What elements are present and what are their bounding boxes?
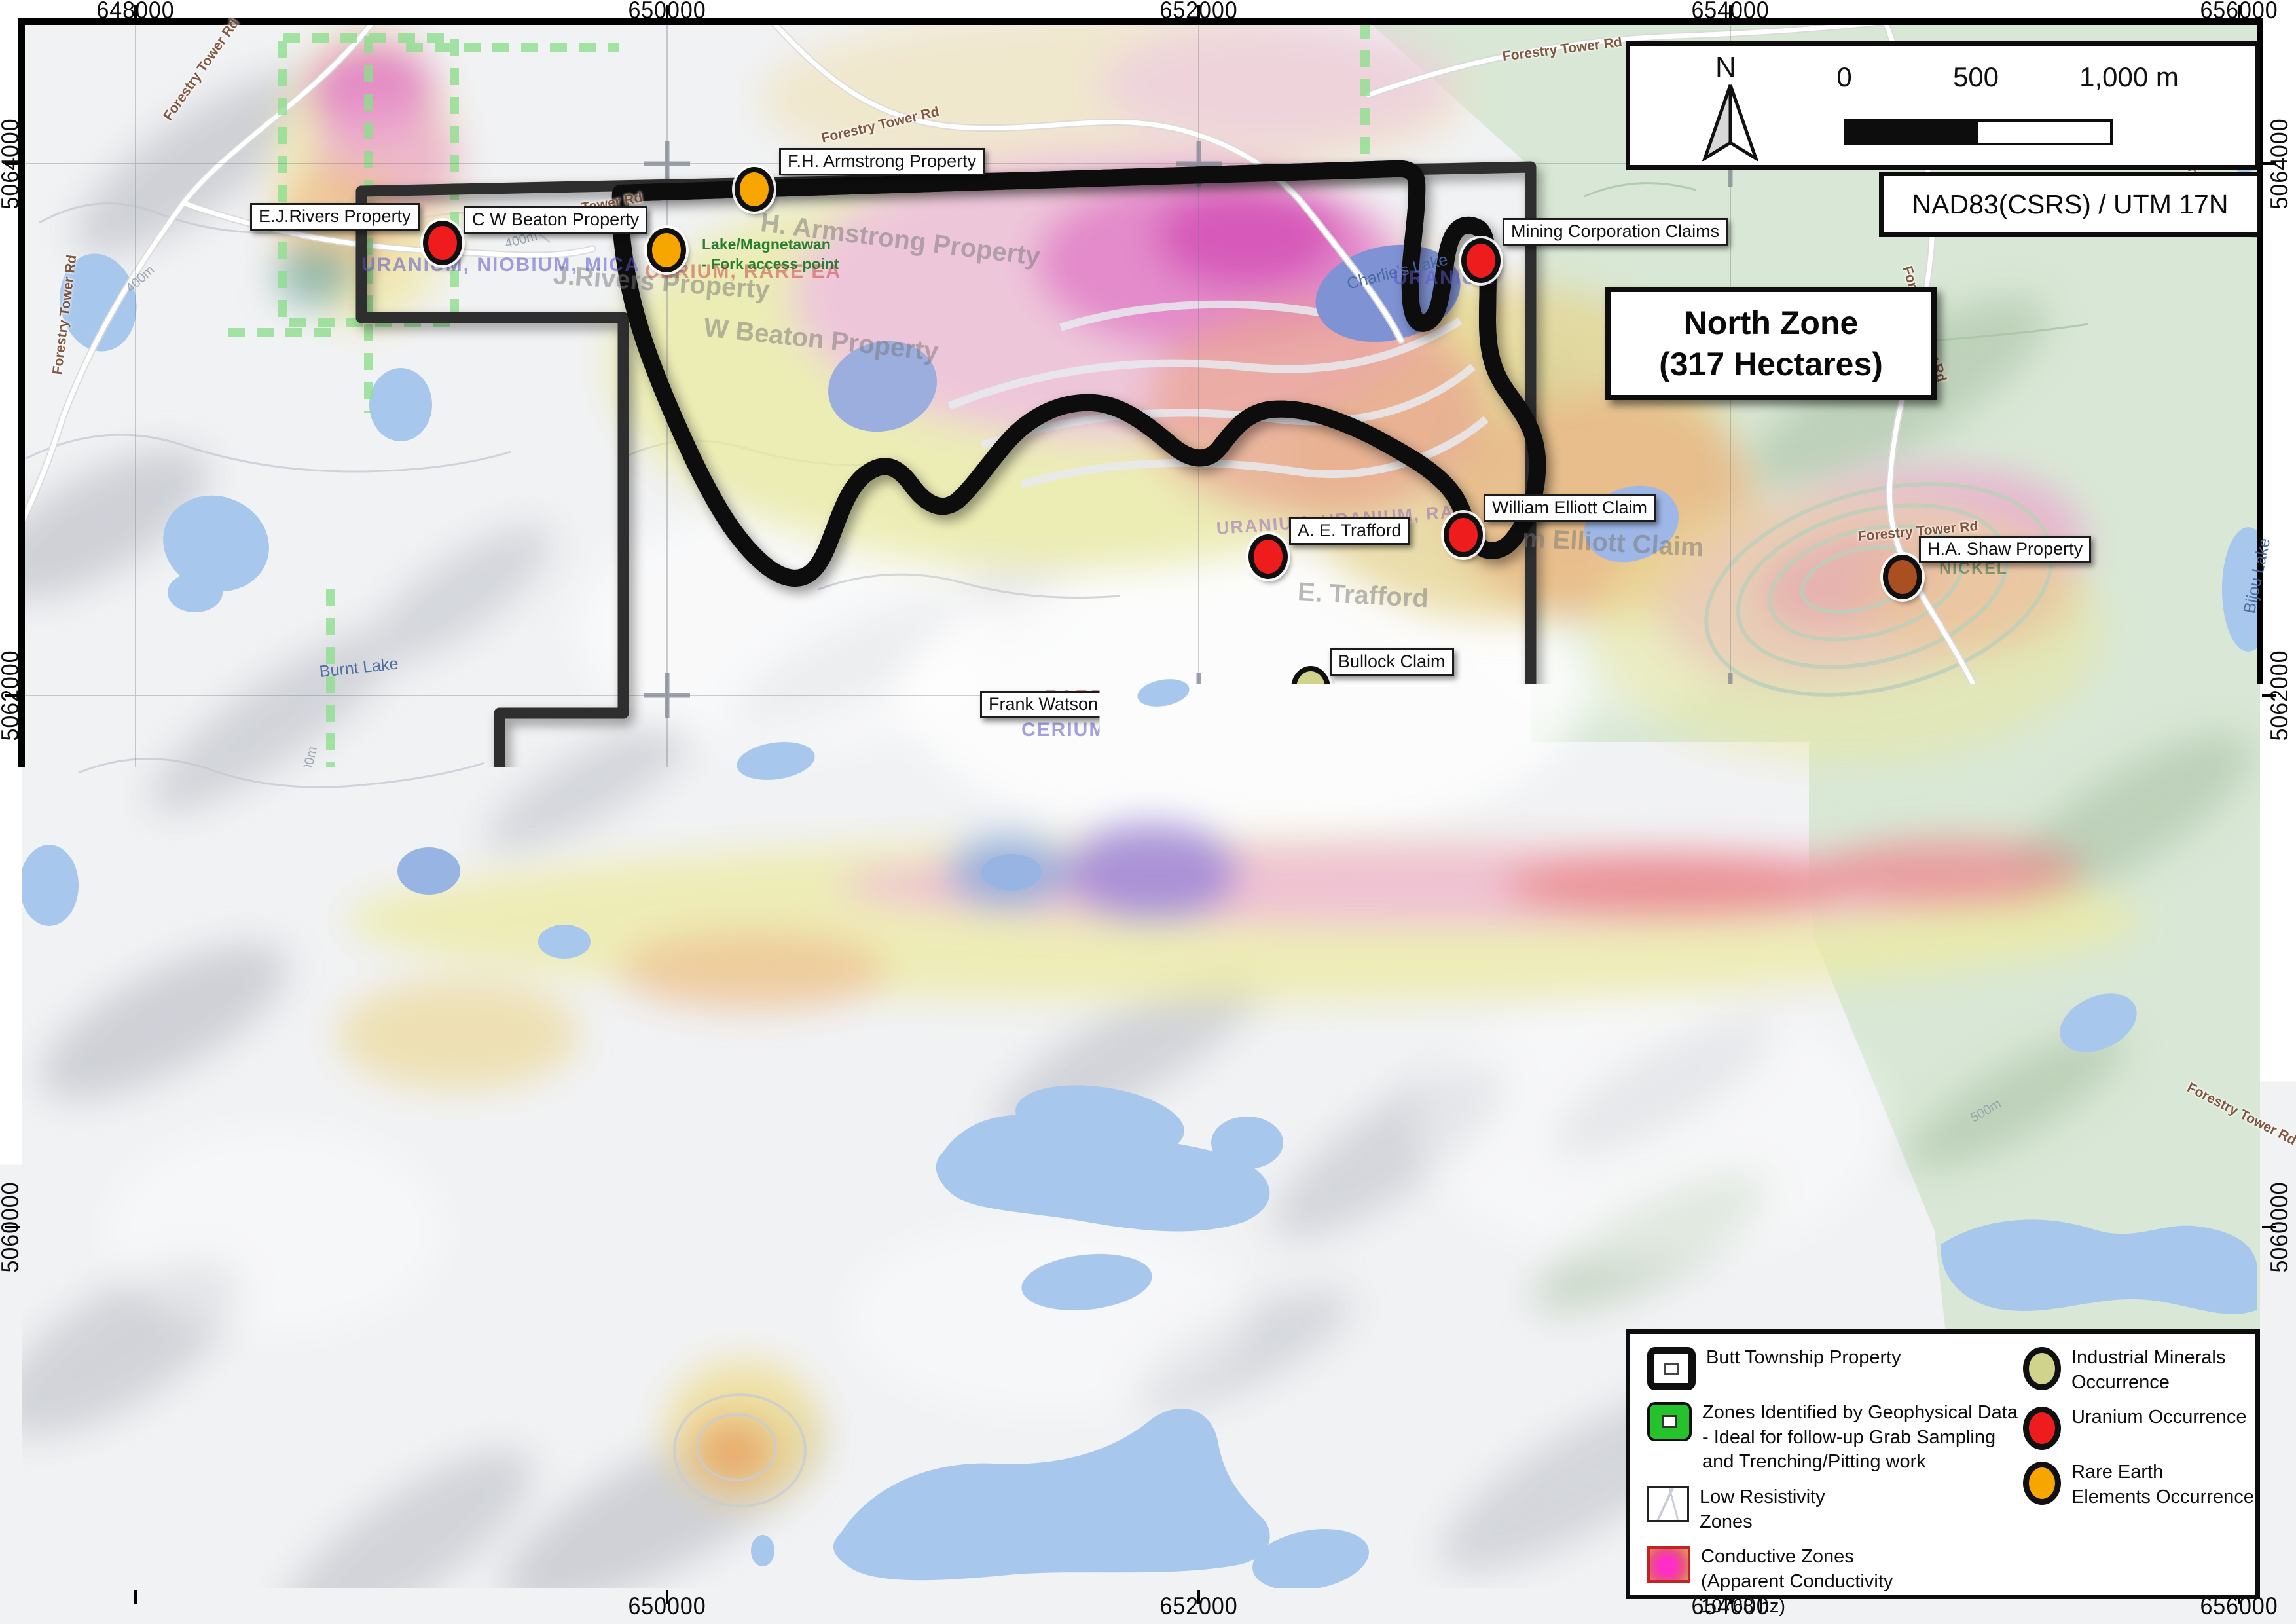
crs-label: NAD83(CSRS) / UTM 17N <box>1912 189 2229 220</box>
legend-item: Rare EarthElements Occurrence <box>2023 1460 2252 1509</box>
industrial-legend-symbol-icon <box>2023 1347 2061 1390</box>
scale-tick-1000: 1,000 m <box>2079 62 2179 93</box>
legend-line: 10768 hz) <box>1701 1595 1893 1619</box>
grid-tick <box>1197 1590 1200 1604</box>
legend-line: Butt Township Property <box>1706 1346 1901 1371</box>
zone-label-north-zone: North Zone(317 Hectares) <box>1605 287 1937 400</box>
marker-dot-uranium[interactable] <box>460 1103 499 1147</box>
legend-item-label: Industrial MineralsOccurrence <box>2071 1346 2225 1395</box>
grid-tick <box>1729 5 1732 20</box>
grid-tick <box>2262 694 2276 697</box>
marker-dot-uranium[interactable] <box>423 221 462 265</box>
legend-item-label: Uranium Occurrence <box>2071 1405 2247 1430</box>
low-resistivity-legend-symbol-icon <box>1647 1486 1689 1522</box>
legend-item-label: Butt Township Property <box>1706 1346 1901 1371</box>
echo-label: llock Claim <box>1336 693 1476 727</box>
grid-tick <box>2262 162 2276 165</box>
zone-title: North Zone <box>1616 303 1926 344</box>
legend: Butt Township PropertyZones Identified b… <box>1626 1329 2260 1599</box>
marker-dot-uranium[interactable] <box>1444 513 1483 557</box>
legend-item-label: Zones Identified by Geophysical Data- Id… <box>1702 1401 2018 1475</box>
scale-bar <box>1844 119 2113 145</box>
zone-subtitle: (231 Hectares) <box>1900 805 2203 847</box>
legend-line: - Ideal for follow-up Grab Sampling <box>1702 1426 2018 1450</box>
grid-tick <box>5 1226 20 1228</box>
zone-label-center-zone: Center Zone(231 Hectares) <box>1889 748 2214 862</box>
marker-dot-rare-earth[interactable] <box>735 167 774 212</box>
grid-tick <box>2262 1226 2276 1228</box>
marker-dot-shaw[interactable] <box>1883 555 1922 599</box>
legend-item-label: Rare EarthElements Occurrence <box>2071 1460 2254 1509</box>
marker-label[interactable]: C W Beaton Property <box>464 206 647 234</box>
marker-label[interactable]: J. Ryan Property <box>895 978 1044 1006</box>
legend-line: Zones Identified by Geophysical Data <box>1702 1401 2018 1426</box>
zone-title: South Zone <box>139 1328 438 1369</box>
legend-line: Occurrence <box>2071 1371 2225 1395</box>
property-legend-symbol-icon <box>1647 1347 1696 1390</box>
marker-label[interactable]: A.E. Trafford Claim <box>1218 748 1385 775</box>
marker-label[interactable]: Ryan, Mann and Sheehan Claims <box>502 1084 784 1111</box>
legend-item-label: Conductive Zones(Apparent Conductivity10… <box>1701 1545 1893 1619</box>
grid-tick <box>134 5 137 20</box>
min-blue-label: URANIUM, NIOBIUM, MICA <box>361 254 640 276</box>
marker-dot-rare-earth[interactable] <box>919 874 958 919</box>
legend-item-label: Low ResistivityZones <box>1700 1485 1825 1534</box>
legend-item: Butt Township Property <box>1647 1346 2014 1390</box>
grid-tick <box>666 1590 668 1604</box>
marker-label[interactable]: John Ryan Property <box>959 855 1133 883</box>
marker-dot-uranium[interactable] <box>1248 534 1288 579</box>
legend-item: Low ResistivityZones <box>1647 1485 2014 1534</box>
north-arrow-icon <box>1701 83 1760 161</box>
marker-dot-rare-earth[interactable] <box>853 996 892 1041</box>
marker-dot-uranium[interactable] <box>925 1190 964 1235</box>
grid-tick <box>2238 5 2240 20</box>
legend-item: Uranium Occurrence <box>2023 1405 2252 1450</box>
zone-title: Center Zone <box>1900 764 2203 805</box>
marker-dot-uranium[interactable] <box>1461 238 1501 283</box>
grid-tick <box>5 694 20 697</box>
marker-label[interactable]: F.H. Armstrong Property <box>779 148 985 175</box>
marker-dot-industrial[interactable] <box>1291 666 1330 710</box>
legend-line: Elements Occurrence <box>2071 1485 2254 1510</box>
marker-label[interactable]: Bullock Claim <box>1330 648 1454 676</box>
zone-subtitle: (317 Hectares) <box>1616 344 1926 385</box>
min-blue-label: URANIUM <box>178 1173 280 1196</box>
zone-label-south-zone: South Zone(23 Hectares) <box>129 1312 448 1426</box>
map-stage: Forestry Tower RdForestry Tower RdForest… <box>0 0 2296 1624</box>
marker-label[interactable]: E.J.Rivers Property <box>250 203 420 231</box>
marker-label[interactable]: Napoleon Dault Claim <box>644 948 833 975</box>
grid-tick <box>134 1590 137 1604</box>
grid-tick <box>5 162 20 165</box>
scale-tick-500: 500 <box>1953 62 1999 93</box>
marker-label[interactable]: H.A. Shaw Property <box>1919 536 2091 563</box>
zones-legend-symbol-icon <box>1647 1402 1692 1441</box>
scale-bar-black-half <box>1847 122 1978 143</box>
access-label: Lake/Magnetawan <box>702 236 831 253</box>
rare-earth-legend-symbol-icon <box>2023 1462 2061 1505</box>
legend-line: Conductive Zones <box>1701 1545 1893 1570</box>
legend-line: (Apparent Conductivity <box>1701 1570 1893 1595</box>
legend-line: Industrial Minerals <box>2071 1346 2225 1371</box>
marker-label[interactable]: William Elliott Claim <box>1484 494 1656 522</box>
marker-dot-rare-earth[interactable] <box>647 228 686 272</box>
marker-label[interactable]: Frank Watson Property <box>980 691 1178 718</box>
scale-tick-0: 0 <box>1836 62 1851 93</box>
zone-subtitle: (23 Hectares) <box>139 1369 438 1411</box>
grid-tick <box>1197 5 1200 20</box>
legend-item: Conductive Zones(Apparent Conductivity10… <box>1647 1545 2014 1619</box>
uranium-legend-symbol-icon <box>2023 1407 2061 1450</box>
legend-item: Zones Identified by Geophysical Data- Id… <box>1647 1401 2014 1475</box>
grid-tick <box>666 5 668 20</box>
legend-line: Low Resistivity <box>1700 1485 1825 1510</box>
marker-label[interactable]: McRae Uranium Prospecting Syndicate <box>964 1172 1289 1199</box>
marker-label[interactable]: A. E. Trafford <box>1289 517 1410 545</box>
marker-label[interactable]: Mining Corporation Claims <box>1503 218 1728 246</box>
marker-dot-rare-earth[interactable] <box>604 965 644 1010</box>
legend-line: and Trenching/Pitting work <box>1702 1450 2018 1475</box>
legend-line: Rare Earth <box>2071 1460 2254 1485</box>
legend-line: Zones <box>1700 1510 1825 1535</box>
legend-line: Uranium Occurrence <box>2071 1405 2247 1430</box>
marker-dot-rare-earth[interactable] <box>1178 706 1218 750</box>
min-blue-label: URANIUM <box>378 1160 481 1183</box>
north-arrow-label: N <box>1715 51 1736 84</box>
crs-box: NAD83(CSRS) / UTM 17N <box>1879 172 2261 237</box>
legend-item: Industrial MineralsOccurrence <box>2023 1346 2252 1395</box>
access-label: - Fork access point <box>702 255 839 273</box>
scale-box: N 0 500 1,000 m <box>1626 41 2260 170</box>
conductive-legend-symbol-icon <box>1647 1546 1690 1583</box>
